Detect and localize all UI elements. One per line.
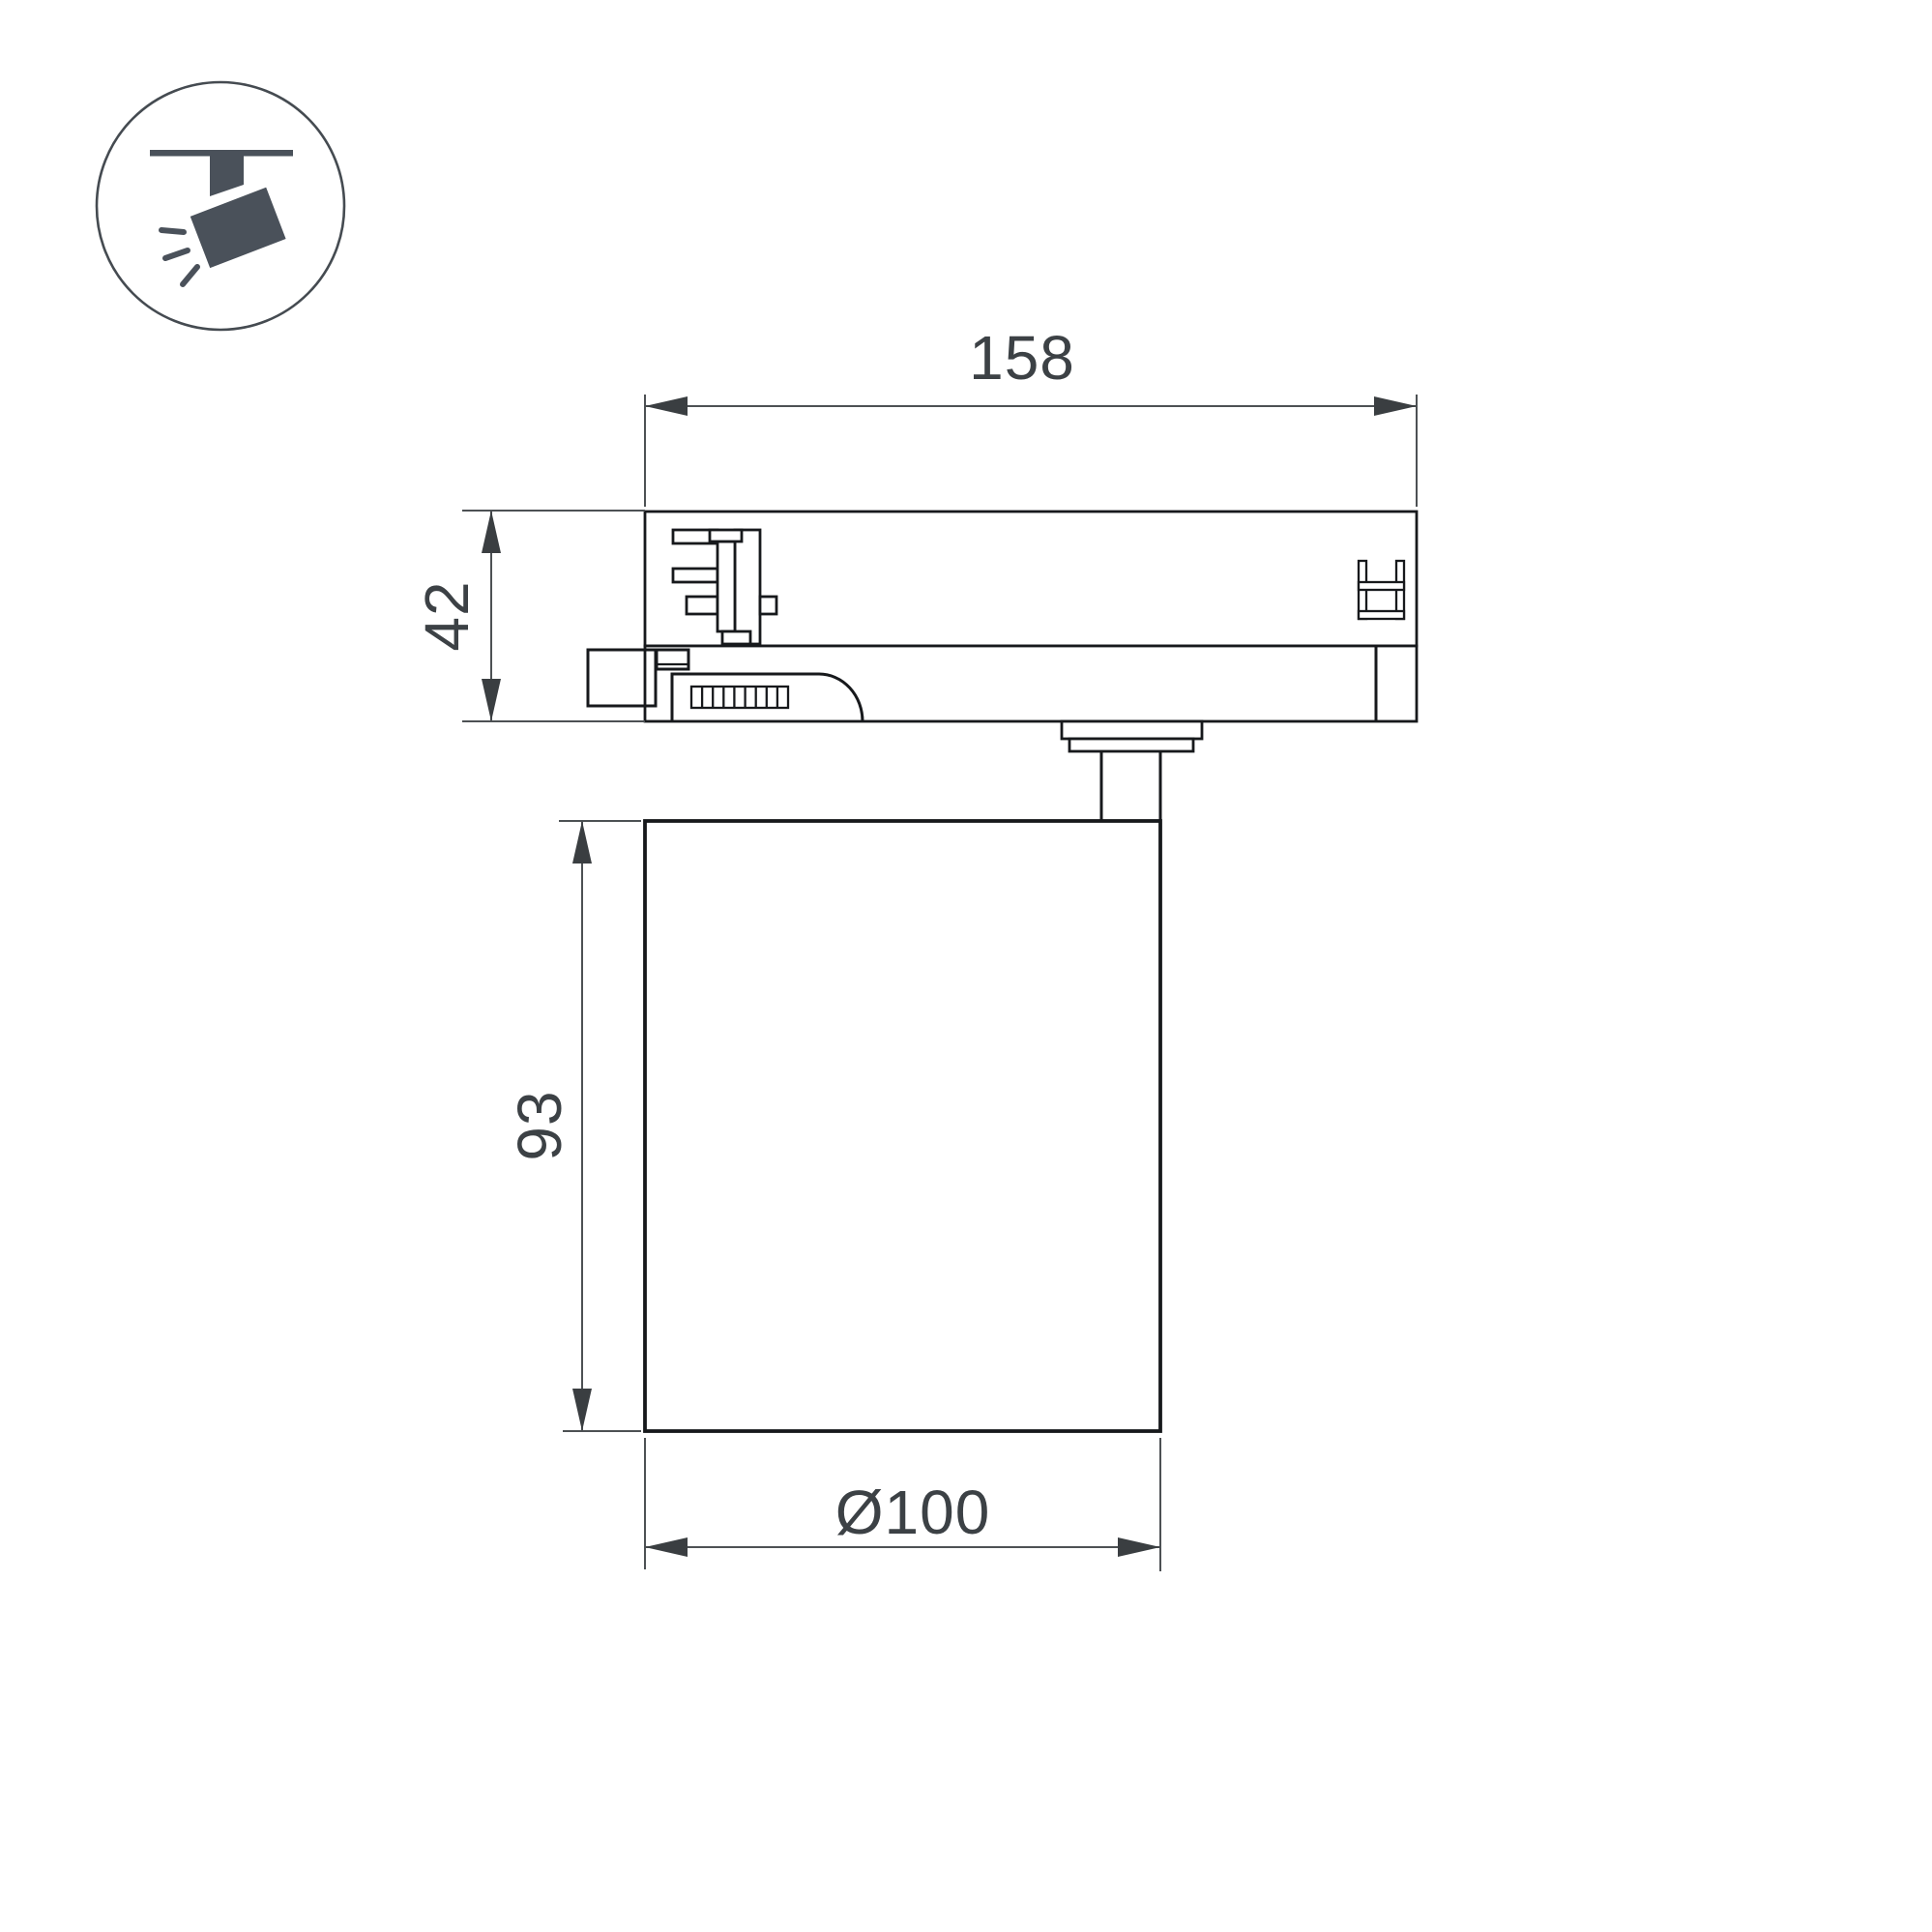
mount-plate-lower (1069, 739, 1193, 751)
mount-plate-upper (1062, 721, 1202, 739)
dimension-label-93: 93 (505, 1090, 574, 1160)
track-spotlight-icon (97, 82, 344, 330)
lamp-body (645, 821, 1160, 1431)
dimensional-drawing: 158 42 93 Ø100 (0, 0, 1932, 1932)
icon-ceiling-track (150, 150, 293, 157)
dimension-label-diameter: Ø100 (835, 1478, 991, 1547)
dimension-diameter-100: Ø100 (645, 1438, 1160, 1571)
swivel-mount (1062, 721, 1202, 821)
dimension-158: 158 (645, 323, 1417, 507)
dimension-label-42: 42 (412, 580, 482, 651)
dimension-42: 42 (412, 511, 645, 721)
dimension-93: 93 (505, 821, 641, 1431)
drawing-page: 158 42 93 Ø100 (0, 0, 1932, 1932)
dimension-label-158: 158 (969, 323, 1075, 393)
dip-switch (691, 687, 788, 708)
track-adapter-drawing (588, 512, 1417, 821)
adapter-flange (645, 646, 1417, 721)
